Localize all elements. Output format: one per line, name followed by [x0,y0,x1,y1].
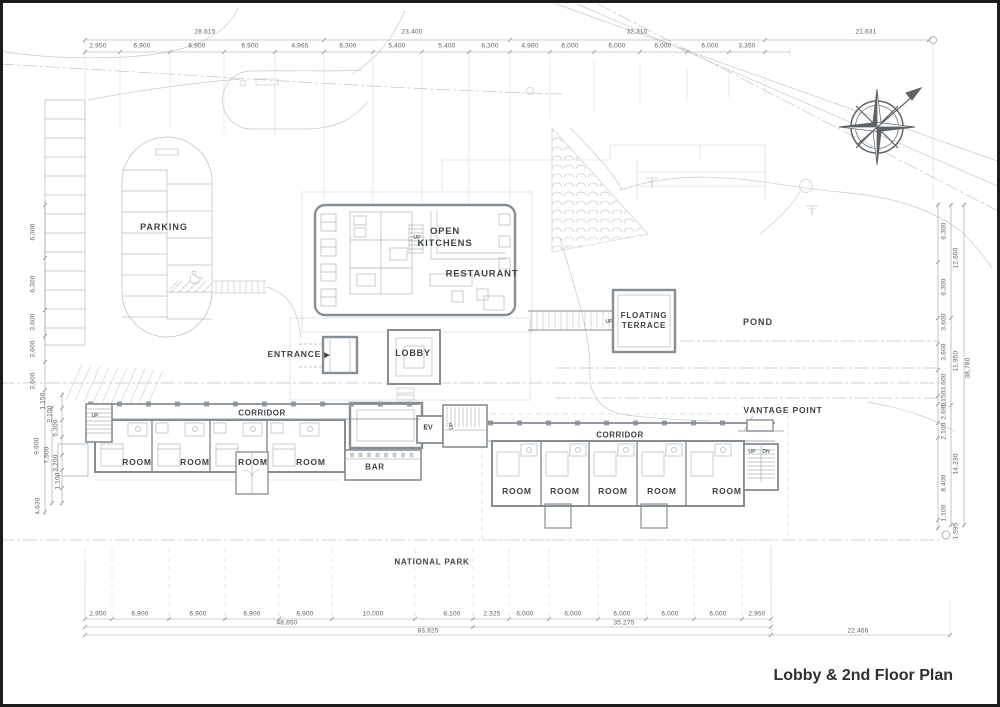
dimension-label: 35,275 [613,620,634,627]
dimension-label: 11,950 [953,351,960,372]
dimension-label: 6,000 [608,43,625,50]
dimension-label: 3,600 [30,313,37,330]
site-linework [0,4,1000,634]
pond-label: POND [743,317,773,327]
dimension-label: 3,600 [30,340,37,357]
dimension-label: 32,310 [626,29,647,36]
dimension-label: 5,400 [388,43,405,50]
dimension-label: 5,300 [53,419,60,436]
up-label: UP [606,319,613,325]
dimension-label: 6,900 [189,611,206,618]
floor-plan-sheet: PARKING OPEN KITCHENS RESTAURANT ENTRANC… [0,0,1000,707]
dimension-label: 3,600 [941,373,948,390]
dimension-label: 6,900 [243,611,260,618]
open-kitchens-label: OPEN KITCHENS [418,226,473,250]
dimension-label: 6,300 [941,278,948,295]
dimension-label: 6,900 [241,43,258,50]
room-label: ROOM [238,457,268,467]
room-label: ROOM [712,486,742,496]
up-label: UP [749,449,756,455]
dimension-label: 8,400 [941,474,948,491]
dimension-label: 4,965 [291,43,308,50]
dimension-label: 6,000 [709,611,726,618]
floating-terrace-line2: TERRACE [621,321,668,331]
bar-label: BAR [365,463,385,472]
floating-terrace-line1: FLOATING [621,311,668,321]
dimension-label: 38,780 [965,357,972,378]
dimension-label: 6,900 [133,43,150,50]
dimension-label: 3,350 [738,43,755,50]
dimension-label: 3,200 [53,454,60,471]
dimension-label: 6,000 [701,43,718,50]
up-label: UP [449,423,455,430]
dimension-label: 21,631 [855,29,876,36]
dimension-label: 48,650 [276,620,297,627]
lobby-label: LOBBY [395,348,431,358]
dimension-label: 2,950 [89,611,106,618]
restaurant-label: RESTAURANT [446,269,519,280]
room-label: ROOM [598,486,628,496]
dimension-label: 6,300 [30,275,37,292]
dimension-label: 8,100 [443,611,460,618]
entrance-arrow-icon: ▶ [324,352,330,359]
entrance-text: ENTRANCE [268,349,322,359]
dimension-label: 2,950 [748,611,765,618]
room-label: ROOM [296,457,326,467]
dimension-label: 23,400 [401,29,422,36]
open-kitchens-line2: KITCHENS [418,238,473,250]
dimension-label: 83,925 [417,628,438,635]
dimension-label: 2,325 [483,611,500,618]
dimension-label: 1,595 [953,522,960,539]
dimension-label: 2,950 [89,43,106,50]
dimension-label: 6,000 [613,611,630,618]
dimension-label: 3,600 [941,343,948,360]
dimension-label: 6,300 [941,222,948,239]
up-label: UP [414,235,421,241]
corridor-right-label: CORRIDOR [596,431,644,440]
compass-rose-icon [839,88,921,165]
dimension-label: 9,600 [34,437,41,454]
sheet-title: Lobby & 2nd Floor Plan [773,667,953,685]
national-park-label: NATIONAL PARK [394,558,469,567]
dimension-label: 10,000 [362,611,383,618]
dimension-label: 6,300 [481,43,498,50]
up-label: UP [92,413,99,419]
dimension-label: 2,100 [941,422,948,439]
dn-label: DN [762,449,769,455]
floating-terrace-label: FLOATING TERRACE [621,311,668,331]
dimension-label: 6,000 [654,43,671,50]
dimension-label: 6,000 [561,43,578,50]
dimension-label: 2,690 [941,402,948,419]
room-label: ROOM [550,486,580,496]
ev-label: EV [423,425,432,432]
dimension-label: 28,615 [194,29,215,36]
entrance-label: ENTRANCE ▶ [268,349,331,359]
room-label: ROOM [502,486,532,496]
dimension-label: 6,900 [131,611,148,618]
corridor-left-label: CORRIDOR [238,409,286,418]
dimension-label: 4,630 [35,497,42,514]
dimension-label: 6,900 [188,43,205,50]
dimension-label: 1,150 [40,392,47,409]
dimension-label: 14,230 [953,453,960,474]
open-kitchens-line1: OPEN [418,226,473,238]
dimension-label: 5,400 [438,43,455,50]
parking-label: PARKING [140,222,188,232]
dimension-label: 1,100 [941,504,948,521]
plan-linework [0,0,1000,707]
room-label: ROOM [647,486,677,496]
dimension-label: 7,500 [44,446,51,463]
dimension-label: 6,000 [661,611,678,618]
vantage-point-label: VANTAGE POINT [743,405,822,415]
room-label: ROOM [122,457,152,467]
dimension-lines [43,37,966,638]
dimension-label: 3,600 [941,313,948,330]
dimension-label: 6,300 [339,43,356,50]
dimension-label: 6,000 [564,611,581,618]
dimension-label: 3,600 [30,372,37,389]
dimension-label: 1,100 [55,472,62,489]
dimension-label: 6,900 [296,611,313,618]
dimension-label: 12,600 [953,247,960,268]
dimension-label: 6,000 [516,611,533,618]
dimension-label: 6,300 [30,223,37,240]
room-label: ROOM [180,457,210,467]
dimension-label: 22,466 [847,628,868,635]
dimension-label: 4,960 [521,43,538,50]
